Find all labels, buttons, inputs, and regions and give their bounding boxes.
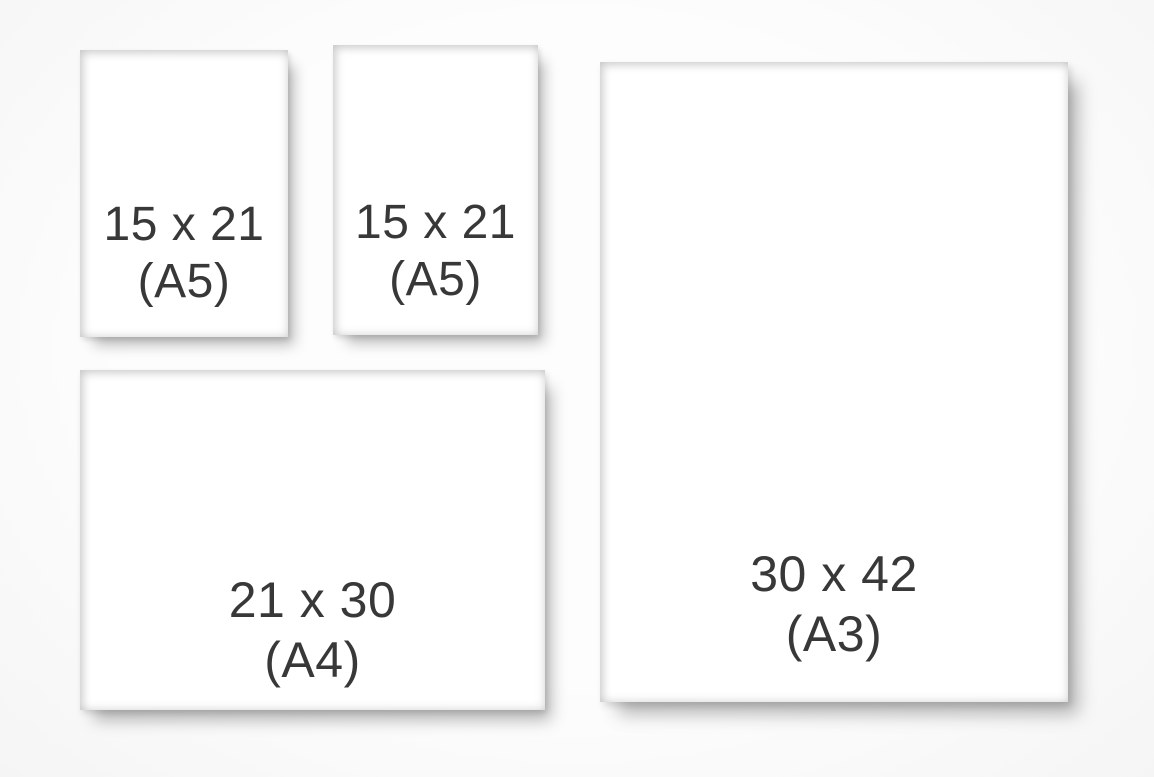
picture-frame-a3-right: 30 x 42 (A3) (600, 62, 1068, 702)
paper-inner: 30 x 42 (A3) (600, 62, 1068, 702)
dimensions-text: 15 x 21 (333, 194, 538, 252)
format-text: (A3) (600, 604, 1068, 664)
frame-paper: 15 x 21 (A5) (333, 45, 538, 335)
frame-paper: 21 x 30 (A4) (80, 370, 545, 710)
paper-inner: 21 x 30 (A4) (80, 370, 545, 710)
picture-frame-a5-top-right: 15 x 21 (A5) (333, 45, 538, 335)
paper-inner: 15 x 21 (A5) (80, 50, 288, 337)
dimensions-text: 30 x 42 (600, 544, 1068, 604)
size-label: 21 x 30 (A4) (80, 570, 545, 690)
size-label: 30 x 42 (A3) (600, 544, 1068, 664)
size-label: 15 x 21 (A5) (80, 196, 288, 311)
paper-inner: 15 x 21 (A5) (333, 45, 538, 335)
dimensions-text: 15 x 21 (80, 196, 288, 254)
frame-paper: 15 x 21 (A5) (80, 50, 288, 337)
dimensions-text: 21 x 30 (80, 570, 545, 630)
picture-frame-a4-bottom-left: 21 x 30 (A4) (80, 370, 545, 710)
frame-paper: 30 x 42 (A3) (600, 62, 1068, 702)
format-text: (A5) (333, 251, 538, 309)
size-label: 15 x 21 (A5) (333, 194, 538, 309)
picture-frame-a5-top-left: 15 x 21 (A5) (80, 50, 288, 337)
frame-size-comparison-scene: 15 x 21 (A5) 15 x 21 (A5) 21 x 30 (A4) (0, 0, 1154, 777)
format-text: (A4) (80, 630, 545, 690)
format-text: (A5) (80, 253, 288, 311)
